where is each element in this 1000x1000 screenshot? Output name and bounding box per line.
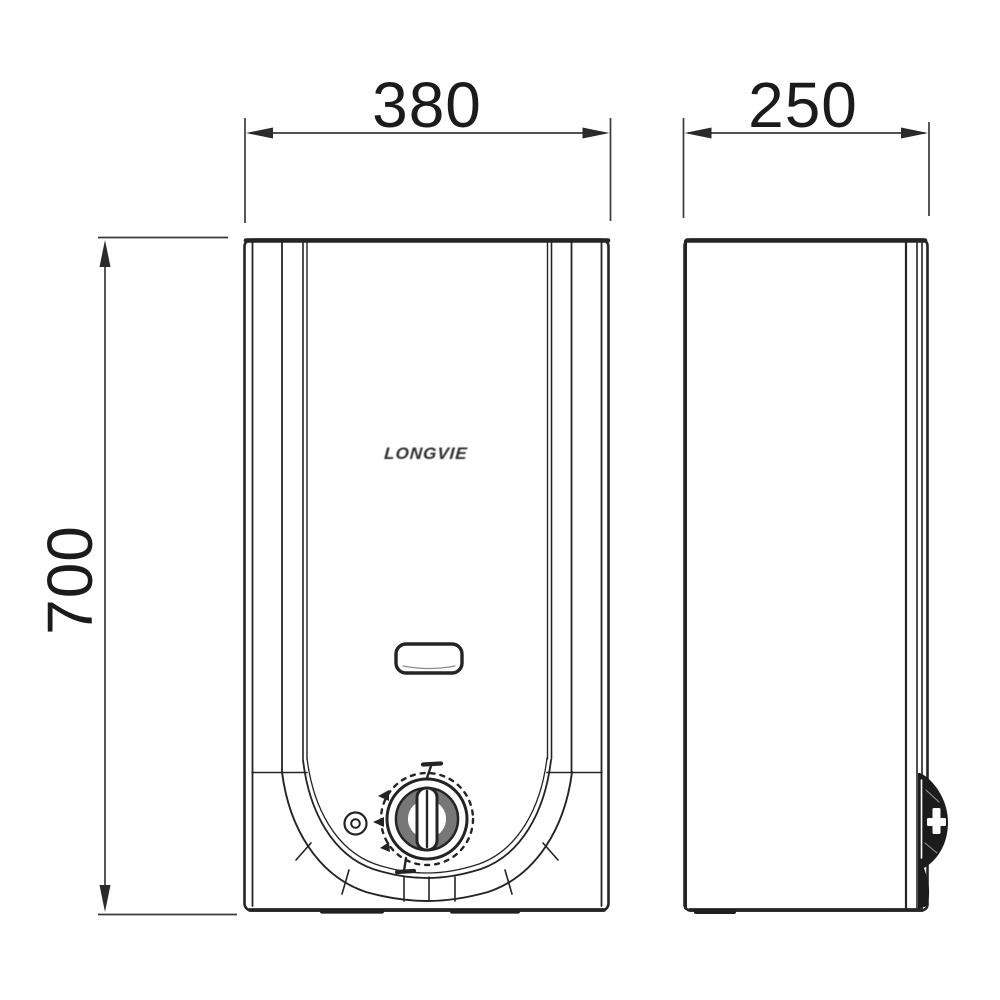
drawing-canvas: 380 250 700 LONGVIE [0, 0, 1000, 1000]
front-view [245, 240, 609, 914]
arrowhead-left [246, 128, 273, 139]
side-knob-cross-v [933, 808, 941, 834]
side-view [685, 240, 949, 915]
dimension-depth-value: 250 [703, 73, 903, 137]
dimension-width-value: 380 [327, 73, 527, 137]
dimension-height-700 [98, 238, 237, 915]
arrowhead-right [901, 128, 928, 139]
band-dividers [296, 843, 558, 901]
dimension-annotations [98, 118, 929, 915]
side-outer-body [685, 240, 928, 911]
dimension-height-value: 700 [38, 470, 102, 690]
viewing-window-inner-line [403, 666, 455, 669]
technical-drawing [0, 0, 1000, 1000]
side-knob-profile [918, 773, 948, 909]
arrowhead-right [583, 128, 610, 139]
pilot-indicator-center [351, 819, 360, 828]
brand-logo: LONGVIE [355, 445, 496, 462]
side-foot [694, 909, 736, 914]
pilot-indicator-light [345, 813, 367, 835]
arrowhead-bottom [100, 885, 111, 912]
arrowhead-top [100, 240, 111, 267]
control-knob[interactable] [381, 773, 473, 865]
